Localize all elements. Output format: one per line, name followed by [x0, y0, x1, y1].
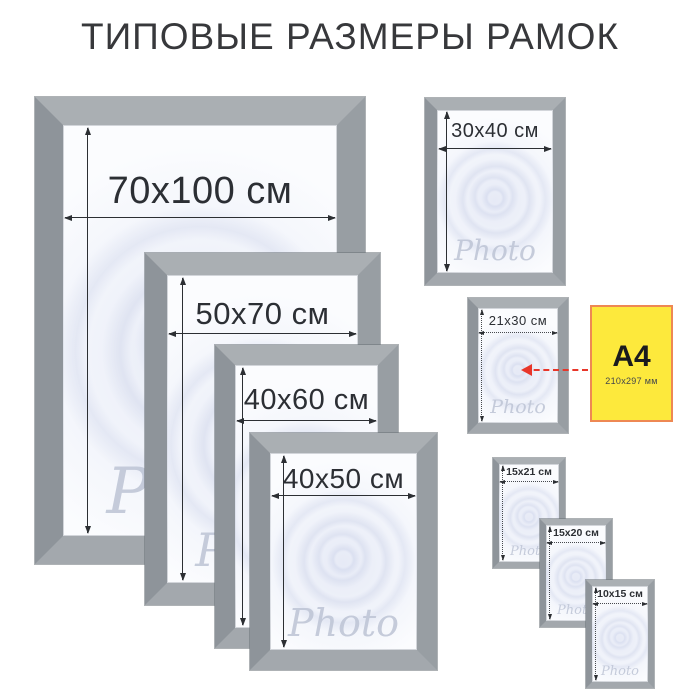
frame-mat: Photo 21x30 см — [478, 308, 558, 423]
page-title: ТИПОВЫЕ РАЗМЕРЫ РАМОК — [0, 16, 700, 58]
size-label: 10x15 см — [592, 589, 648, 601]
width-arrow — [547, 542, 605, 543]
a4-pointer-arrow — [524, 369, 588, 371]
frame-sizes-infographic: ТИПОВЫЕ РАЗМЕРЫ РАМОК Photo 70x100 см Ph… — [0, 0, 700, 700]
width-arrow — [593, 603, 647, 604]
photo-watermark: Photo — [592, 665, 648, 678]
a4-size-card: A4 210x297 мм — [590, 305, 673, 422]
width-arrow — [169, 333, 356, 334]
size-label: 50x70 см — [167, 297, 358, 331]
frame-mat: Photo 10x15 см — [592, 586, 648, 682]
frame-mat: Photo 40x50 см — [270, 453, 417, 650]
a4-dimensions: 210x297 мм — [605, 376, 657, 386]
frame-40x50: Photo 40x50 см — [250, 433, 437, 670]
frame-21x30: Photo 21x30 см — [468, 298, 568, 433]
size-label: 40x50 см — [270, 464, 417, 495]
width-arrow — [65, 217, 335, 218]
width-arrow — [500, 481, 558, 482]
width-arrow — [237, 420, 376, 421]
width-arrow — [439, 148, 551, 149]
a4-label: A4 — [612, 342, 650, 372]
size-label: 15x21 см — [499, 467, 559, 479]
photo-watermark: Photo — [437, 237, 553, 265]
photo-watermark: Photo — [270, 604, 417, 642]
width-arrow — [479, 332, 557, 333]
size-label: 30x40 см — [437, 120, 553, 142]
frame-10x15: Photo 10x15 см — [586, 580, 654, 688]
frame-30x40: Photo 30x40 см — [425, 98, 565, 285]
size-label: 40x60 см — [235, 385, 378, 417]
photo-watermark: Photo — [478, 398, 558, 417]
frame-mat: Photo 30x40 см — [437, 110, 553, 273]
size-label: 15x20 см — [546, 528, 606, 540]
size-label: 70x100 см — [63, 171, 337, 213]
size-label: 21x30 см — [478, 314, 558, 328]
width-arrow — [272, 495, 415, 496]
